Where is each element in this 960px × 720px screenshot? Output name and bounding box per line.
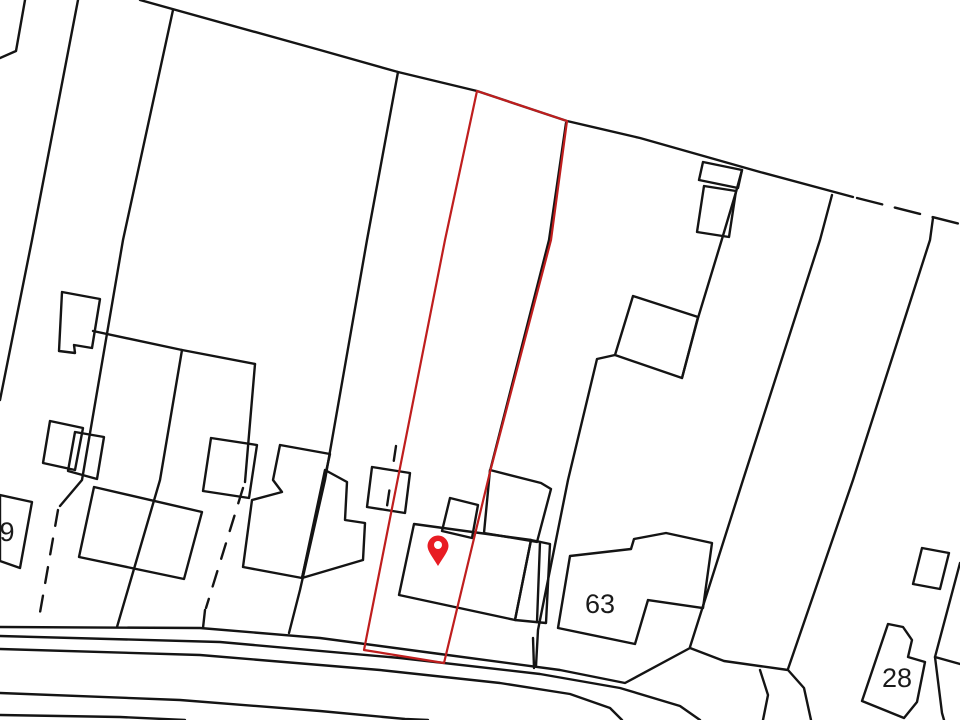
site-plan-map: 96328 <box>0 0 960 720</box>
house-number-label: 63 <box>585 589 615 619</box>
pin-hole <box>434 541 442 549</box>
house-number-label: 9 <box>0 517 15 547</box>
house-number-label: 28 <box>882 663 912 693</box>
plan-svg: 96328 <box>0 0 960 720</box>
boundary-line <box>533 638 534 668</box>
